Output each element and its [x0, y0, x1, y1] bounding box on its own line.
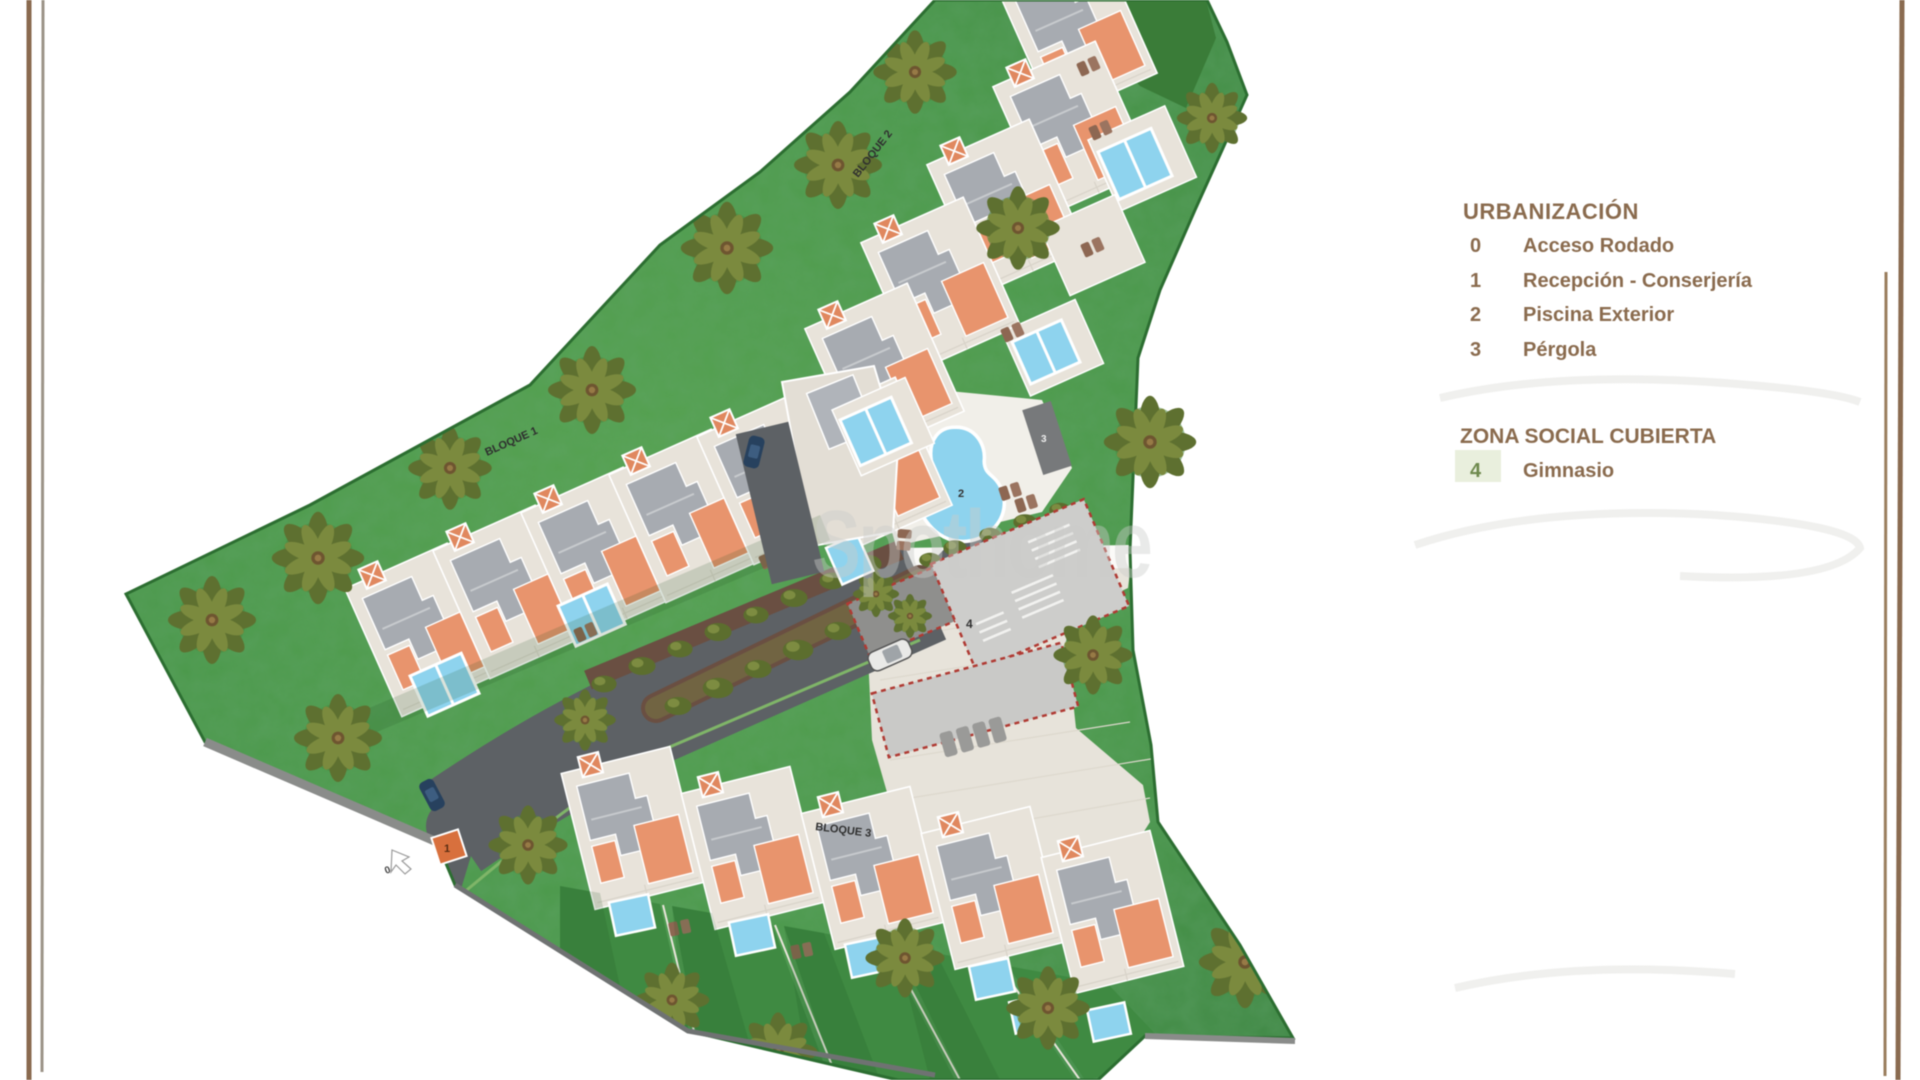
svg-text:1: 1	[444, 843, 450, 855]
svg-text:0: 0	[1470, 235, 1481, 257]
svg-text:4: 4	[966, 617, 973, 631]
svg-text:Gimnasio: Gimnasio	[1523, 460, 1614, 482]
svg-text:Piscina Exterior: Piscina Exterior	[1523, 304, 1674, 326]
svg-text:ZONA SOCIAL CUBIERTA: ZONA SOCIAL CUBIERTA	[1460, 425, 1716, 448]
svg-text:2: 2	[1470, 304, 1481, 326]
svg-text:3: 3	[1470, 339, 1481, 361]
svg-text:Recepción - Conserjería: Recepción - Conserjería	[1523, 270, 1753, 292]
svg-text:URBANIZACIÓN: URBANIZACIÓN	[1463, 199, 1639, 224]
svg-text:Spothome: Spothome	[812, 491, 1151, 598]
svg-text:3: 3	[1041, 434, 1047, 445]
svg-text:Acceso Rodado: Acceso Rodado	[1523, 235, 1674, 257]
svg-text:1: 1	[1470, 270, 1481, 292]
svg-text:4: 4	[1470, 460, 1482, 482]
svg-text:Pérgola: Pérgola	[1523, 339, 1597, 361]
